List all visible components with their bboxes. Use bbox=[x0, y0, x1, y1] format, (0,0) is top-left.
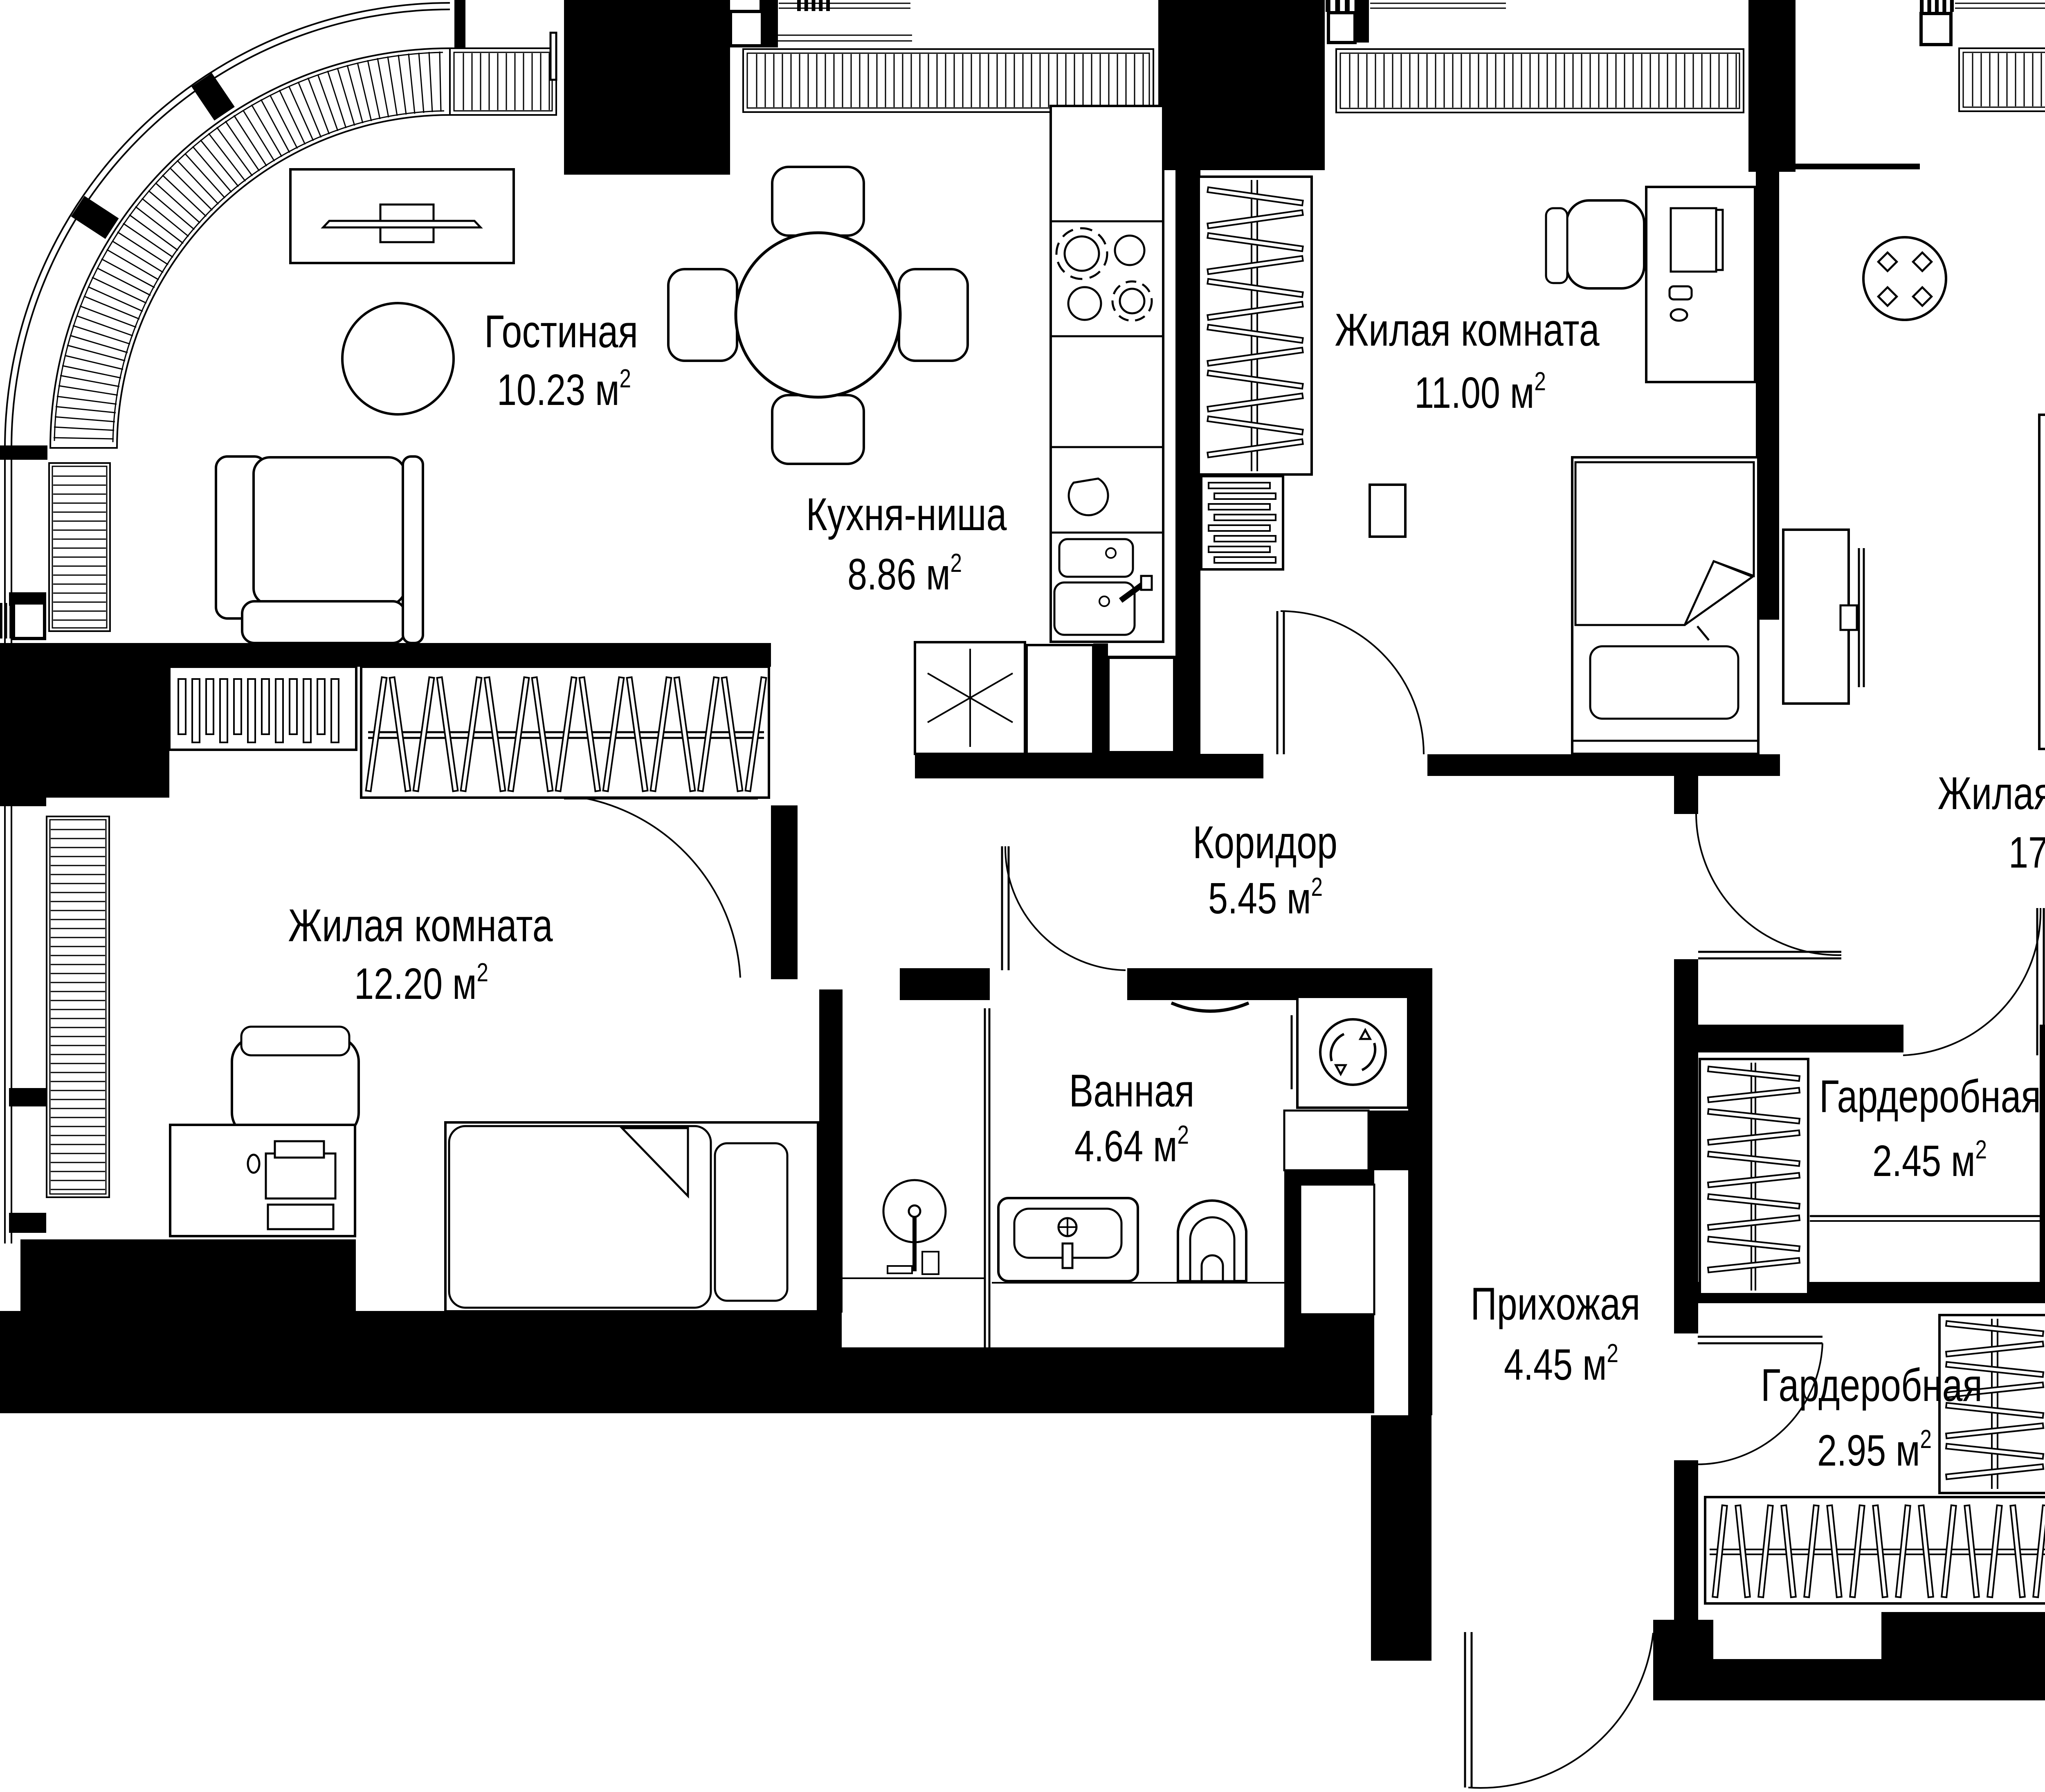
svg-text:12.20 м2: 12.20 м2 bbox=[354, 958, 488, 1009]
svg-text:2.95 м2: 2.95 м2 bbox=[1817, 1425, 1932, 1475]
svg-text:Жилая комната: Жилая комната bbox=[1335, 305, 1600, 356]
svg-text:Гардеробная: Гардеробная bbox=[1819, 1071, 2041, 1122]
svg-text:5.45 м2: 5.45 м2 bbox=[1208, 873, 1323, 923]
svg-text:Жилая комната: Жилая комната bbox=[288, 900, 553, 951]
svg-text:10.23 м2: 10.23 м2 bbox=[497, 364, 631, 415]
svg-text:2.45 м2: 2.45 м2 bbox=[1872, 1135, 1987, 1186]
svg-text:8.86 м2: 8.86 м2 bbox=[847, 549, 962, 599]
svg-text:Гардеробная: Гардеробная bbox=[1761, 1360, 1982, 1411]
svg-text:17.83 м2: 17.83 м2 bbox=[2009, 827, 2045, 877]
svg-text:11.00 м2: 11.00 м2 bbox=[1414, 367, 1546, 418]
svg-text:Гостиная: Гостиная bbox=[484, 306, 638, 358]
svg-text:Жилая комната: Жилая комната bbox=[1937, 768, 2045, 819]
svg-text:Кухня-ниша: Кухня-ниша bbox=[806, 489, 1007, 540]
svg-text:Прихожая: Прихожая bbox=[1470, 1279, 1640, 1330]
svg-text:4.45 м2: 4.45 м2 bbox=[1504, 1339, 1618, 1390]
svg-text:4.64 м2: 4.64 м2 bbox=[1074, 1121, 1189, 1171]
svg-text:Ванная: Ванная bbox=[1069, 1066, 1195, 1117]
svg-text:Коридор: Коридор bbox=[1193, 817, 1337, 868]
